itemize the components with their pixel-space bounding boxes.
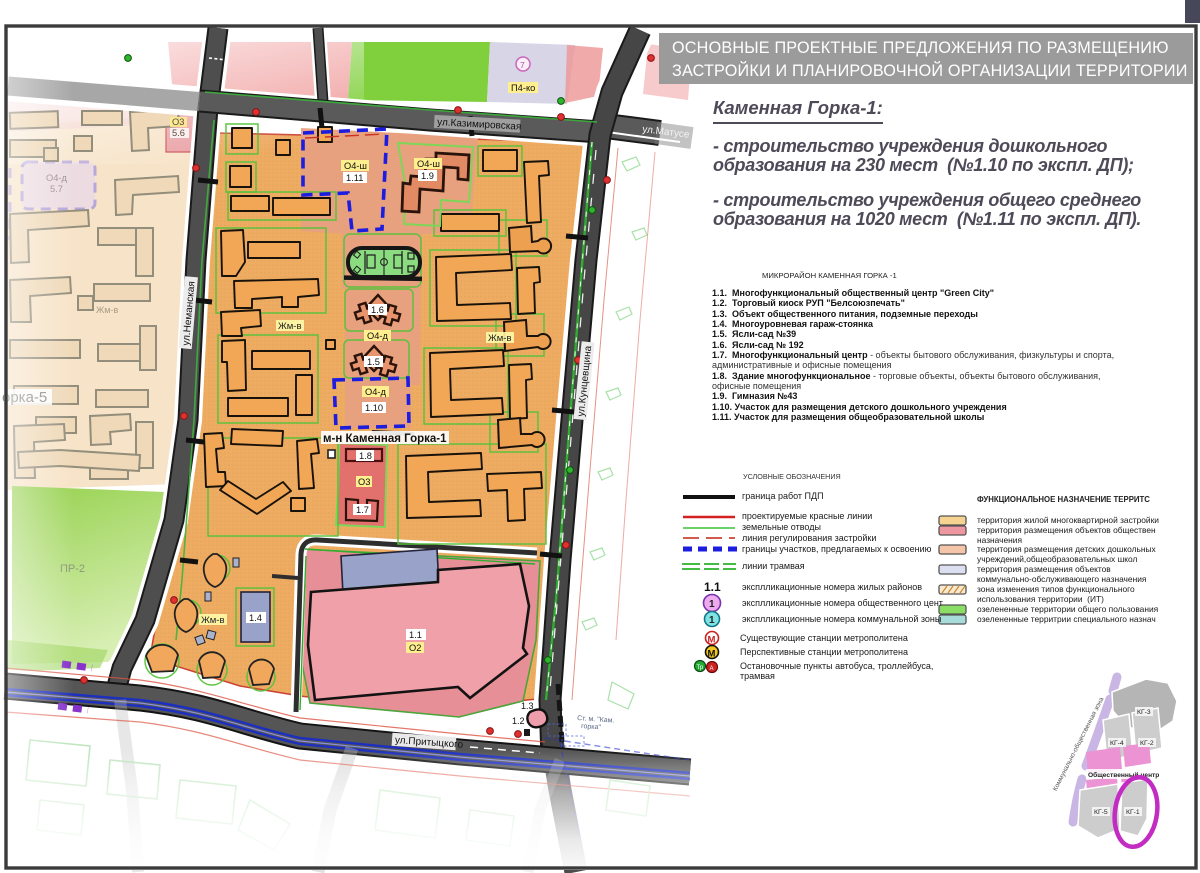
svg-text:КГ-5: КГ-5 — [1094, 809, 1108, 816]
svg-text:1: 1 — [709, 615, 715, 626]
svg-text:М: М — [708, 635, 716, 646]
svg-text:Жм-в: Жм-в — [278, 321, 302, 332]
svg-text:Жм-в: Жм-в — [488, 333, 512, 344]
svg-text:П4-ко: П4-ко — [511, 83, 535, 93]
svg-text:1.1: 1.1 — [704, 580, 721, 594]
svg-text:КГ-4: КГ-4 — [1110, 740, 1124, 747]
svg-text:КГ-1: КГ-1 — [1126, 809, 1140, 816]
svg-text:м-н Каменная Горка-1: м-н Каменная Горка-1 — [323, 433, 447, 445]
svg-text:1.6: 1.6 — [371, 305, 384, 315]
svg-text:1.10: 1.10 — [365, 403, 383, 413]
svg-text:1.4: 1.4 — [249, 613, 262, 623]
svg-text:1.5: 1.5 — [367, 357, 380, 367]
svg-text:О2: О2 — [409, 643, 421, 653]
svg-text:1.11: 1.11 — [346, 173, 363, 183]
svg-text:7: 7 — [520, 60, 525, 70]
svg-text:1.7: 1.7 — [356, 505, 369, 515]
svg-text:КГ-2: КГ-2 — [1140, 740, 1154, 747]
svg-text:1.3: 1.3 — [521, 701, 534, 711]
svg-text:О3: О3 — [172, 117, 184, 127]
svg-text:1.1: 1.1 — [409, 630, 422, 640]
svg-text:1.2: 1.2 — [512, 716, 525, 726]
svg-text:О4-д: О4-д — [367, 331, 388, 341]
svg-text:горка": горка" — [581, 723, 602, 731]
svg-text:Жм-в: Жм-в — [96, 305, 118, 315]
svg-text:О3: О3 — [358, 477, 370, 487]
svg-text:О4-ш: О4-ш — [344, 161, 367, 171]
svg-text:Тр: Тр — [697, 665, 704, 671]
svg-text:1: 1 — [709, 599, 715, 610]
svg-text:О4-д: О4-д — [365, 387, 386, 397]
svg-text:КГ-3: КГ-3 — [1137, 709, 1151, 716]
svg-text:1.9: 1.9 — [421, 171, 434, 181]
svg-text:1.8: 1.8 — [359, 451, 372, 461]
svg-text:М: М — [708, 649, 716, 660]
svg-text:5.6: 5.6 — [172, 128, 185, 138]
svg-text:Жм-в: Жм-в — [201, 615, 225, 626]
svg-text:А: А — [710, 666, 714, 672]
svg-text:Общественный центр: Общественный центр — [1088, 771, 1159, 779]
svg-text:О4-ш: О4-ш — [417, 159, 440, 169]
